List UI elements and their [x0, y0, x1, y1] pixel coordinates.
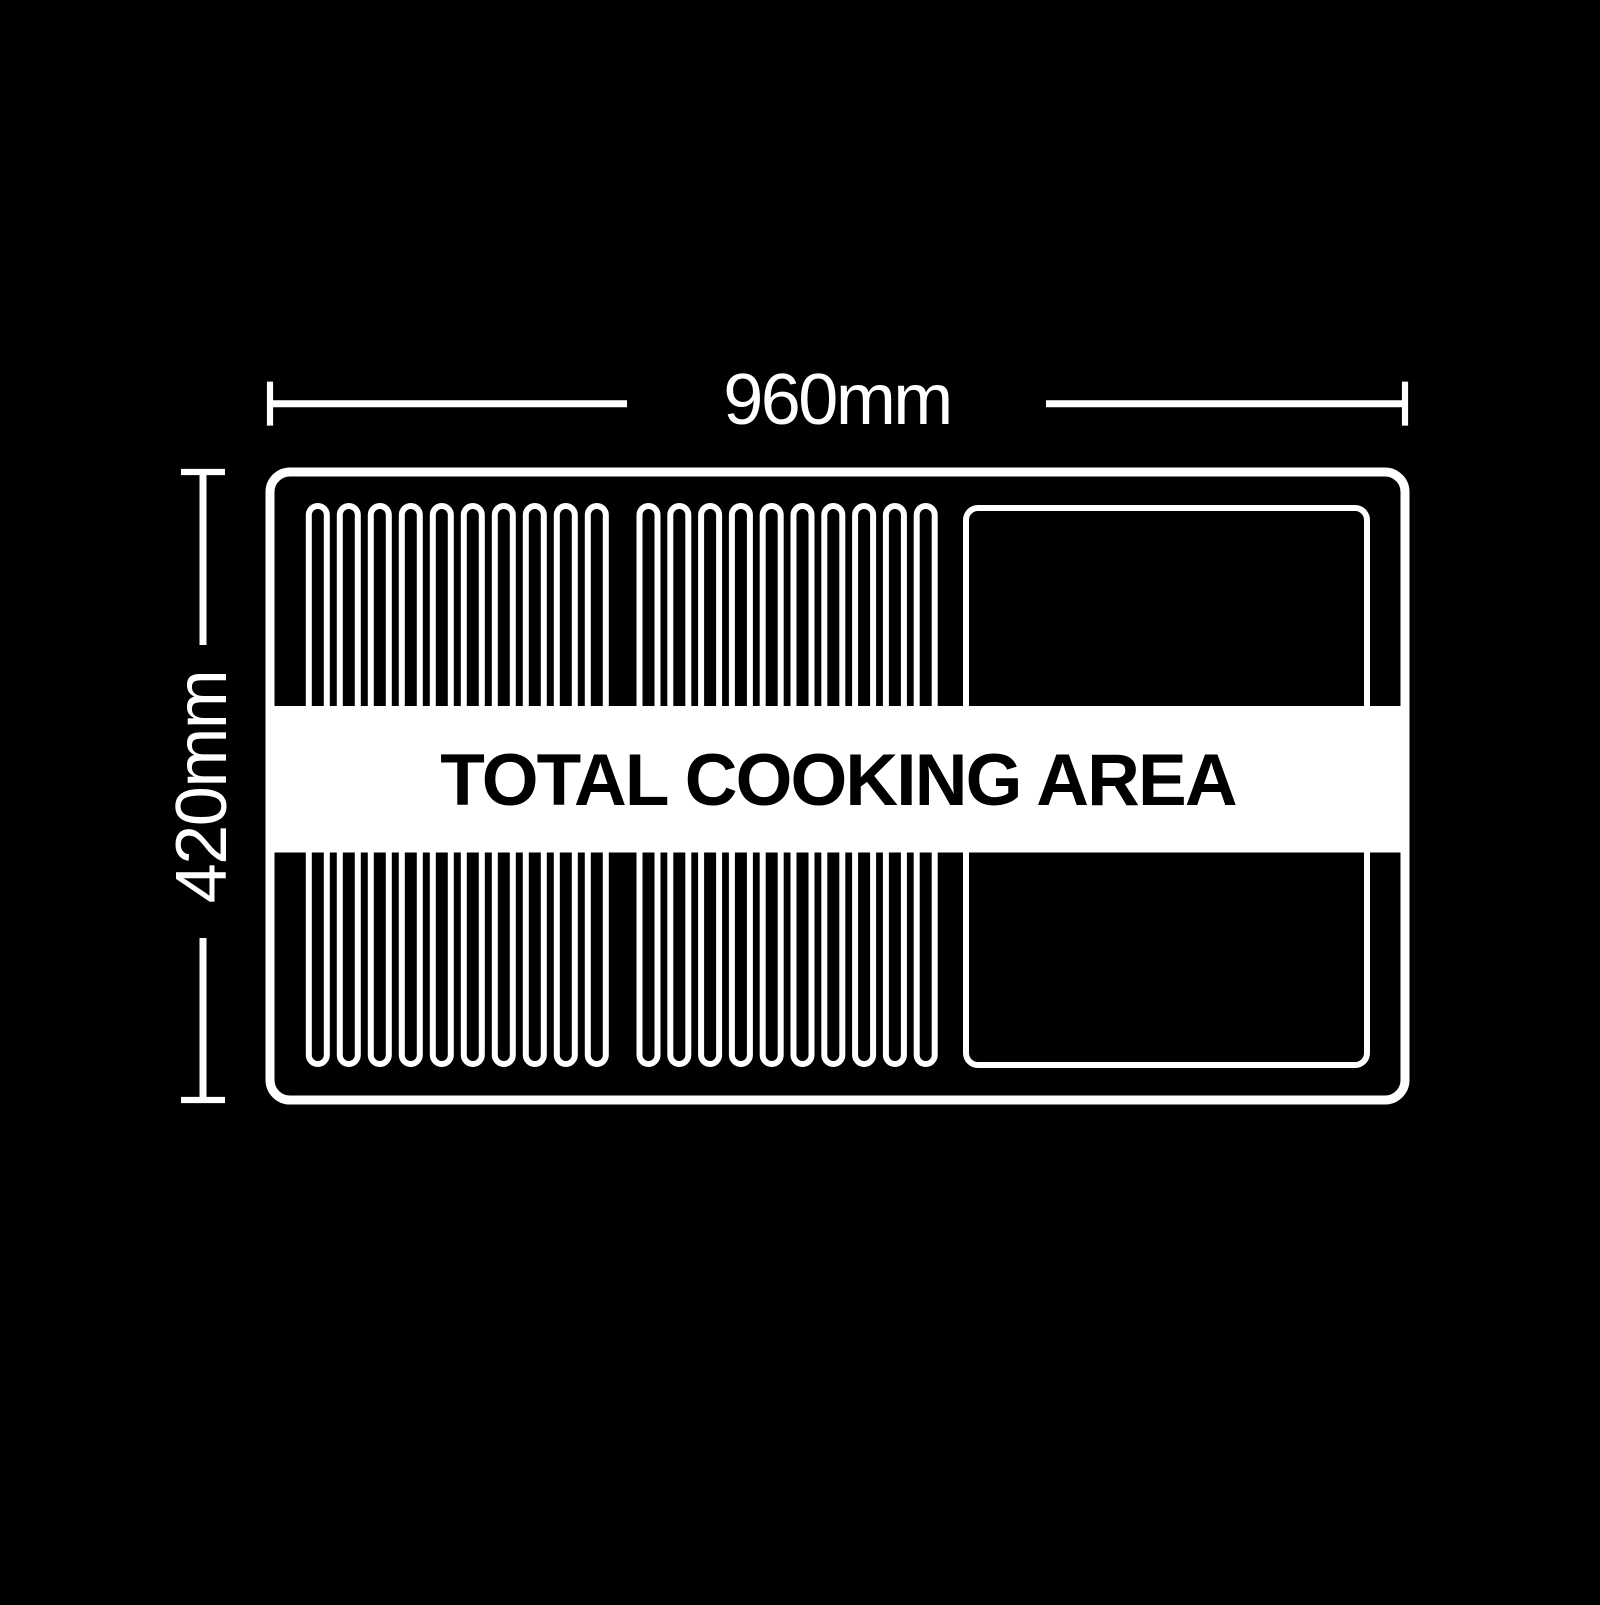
svg-text:TOTAL COOKING AREA: TOTAL COOKING AREA	[440, 740, 1236, 821]
svg-text:420mm: 420mm	[162, 671, 242, 904]
svg-text:960mm: 960mm	[723, 360, 951, 440]
